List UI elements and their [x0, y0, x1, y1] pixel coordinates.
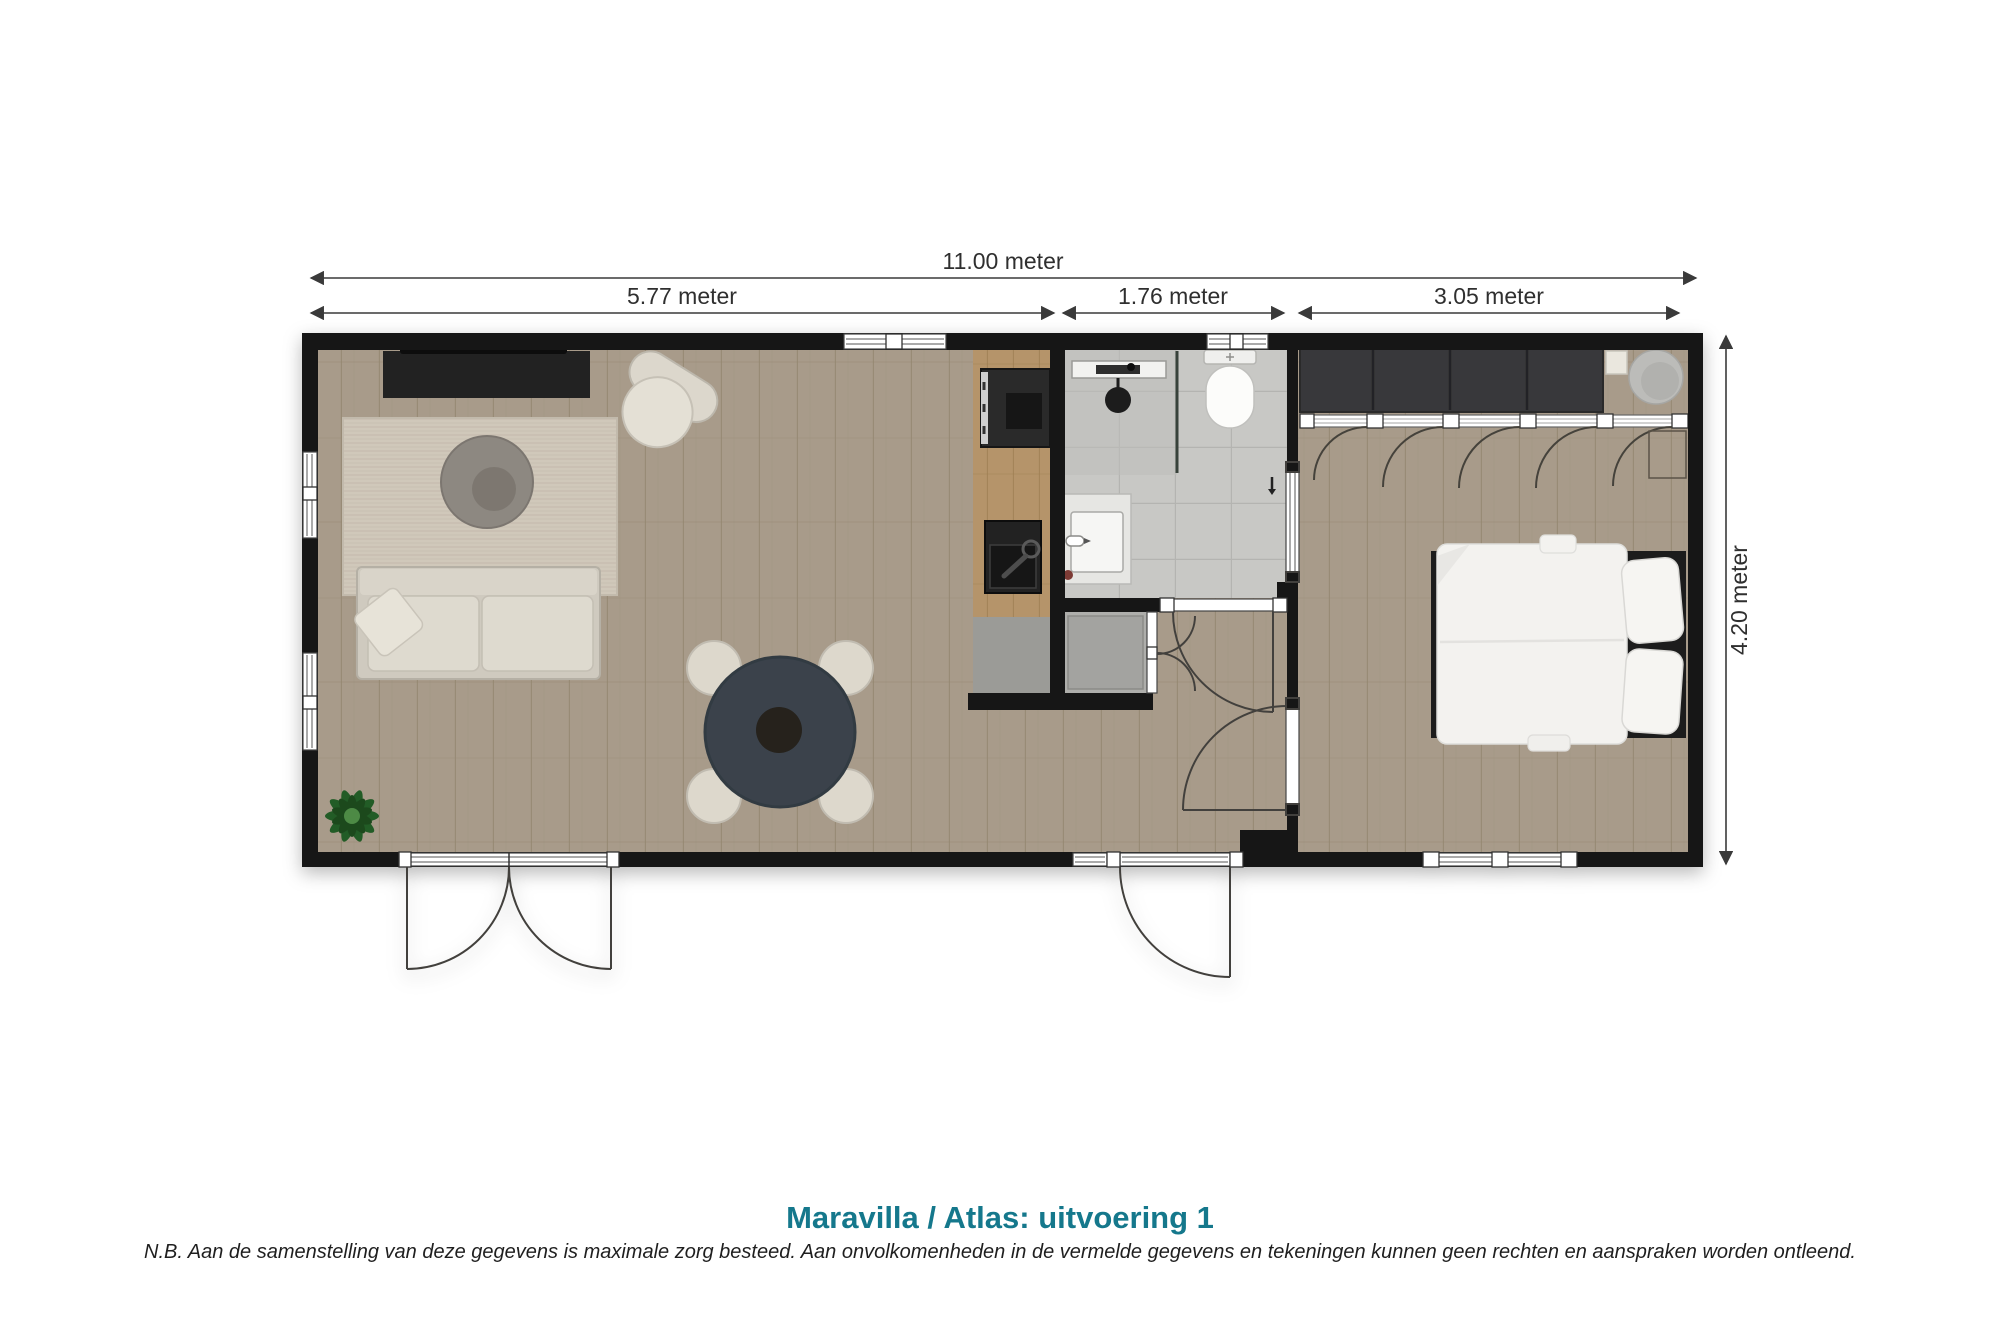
window-left-b	[303, 653, 317, 750]
sliding-door-bedroom	[1286, 462, 1299, 582]
window-hall-sidelight	[1073, 853, 1107, 866]
wall-top	[302, 333, 1703, 350]
double-bed	[1431, 535, 1686, 751]
wall-hall-pier	[1240, 830, 1287, 854]
plan-disclaimer: N.B. Aan de samenstelling van deze gegev…	[144, 1241, 1856, 1263]
wall-bathroom-west	[1050, 350, 1065, 710]
wall-right	[1688, 350, 1703, 852]
wardrobe	[1300, 348, 1603, 412]
bedroom-pouf	[1629, 350, 1683, 404]
dining-set	[687, 641, 873, 823]
dim-label-living-width: 5.77 meter	[627, 283, 737, 309]
window-bottom-bedroom	[1423, 852, 1577, 867]
entry-mat	[973, 617, 1050, 693]
pillow	[1621, 557, 1685, 645]
kitchen-sink	[985, 521, 1041, 593]
wall-bedroom-west-a	[1287, 348, 1298, 462]
window-top-living	[844, 334, 946, 349]
side-entrance-door	[1107, 852, 1243, 977]
sofa	[352, 567, 600, 679]
tv-cabinet	[383, 345, 590, 398]
washing-machine	[1068, 616, 1143, 689]
washbasin	[1063, 494, 1131, 584]
window-left-a	[303, 452, 317, 538]
patio-double-door	[399, 852, 619, 969]
wall-bedroom-west-b	[1287, 582, 1298, 698]
wall-bedroom-west-c	[1287, 815, 1298, 852]
shelf	[1606, 351, 1627, 374]
wall-bathroom-south-a	[1050, 598, 1160, 612]
shower-head	[1105, 387, 1131, 413]
floorplan-page: 11.00 meter 5.77 meter 1.76 meter 3.05 m…	[0, 0, 2000, 1333]
dim-label-overall-width: 11.00 meter	[942, 248, 1063, 274]
window-top-bathroom	[1207, 334, 1268, 349]
wall-closet-south	[968, 693, 1153, 710]
floorplan	[302, 333, 1703, 977]
round-pouf	[441, 436, 533, 528]
kitchen-cooktop	[981, 369, 1050, 447]
plan-title: Maravilla / Atlas: uitvoering 1	[786, 1200, 1214, 1235]
dim-label-overall-depth: 4.20 meter	[1726, 545, 1752, 655]
pillow	[1621, 648, 1684, 735]
duvet	[1437, 544, 1627, 744]
table-centerpiece	[756, 707, 802, 753]
dim-label-hall-width: 1.76 meter	[1118, 283, 1228, 309]
wall-left	[302, 350, 318, 852]
floorplan-canvas: 11.00 meter 5.77 meter 1.76 meter 3.05 m…	[0, 0, 2000, 1333]
dim-label-bedroom-width: 3.05 meter	[1434, 283, 1544, 309]
toilet	[1204, 350, 1256, 428]
